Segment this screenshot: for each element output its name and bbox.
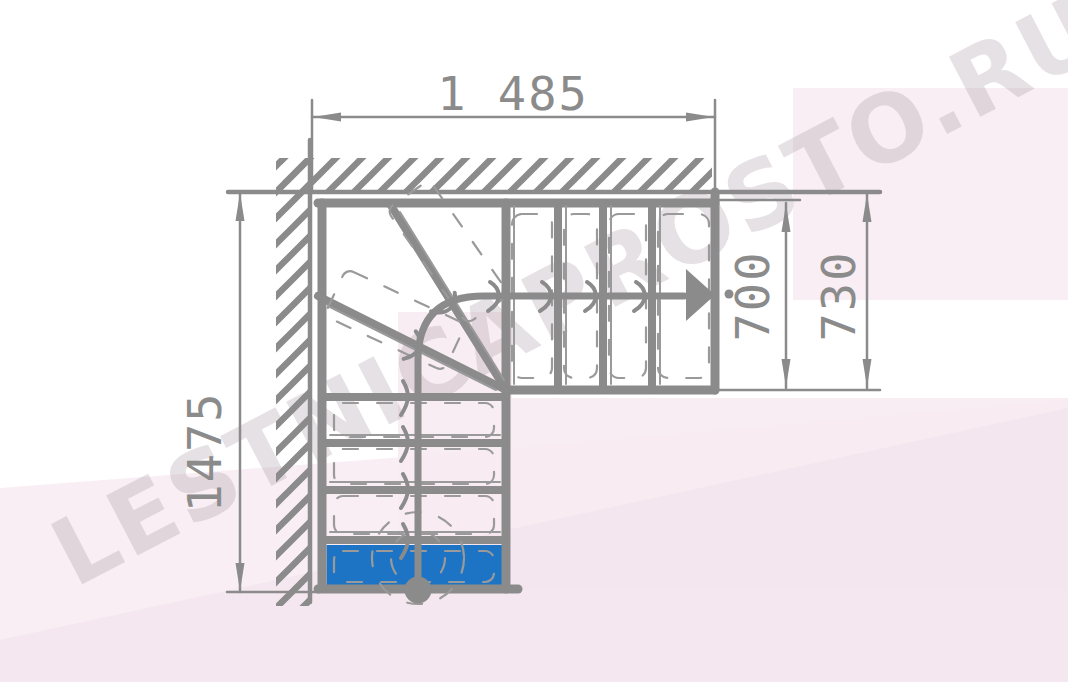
top-wall-hatch	[282, 158, 712, 194]
lower-flight-risers	[322, 397, 506, 540]
dimension-label-inner-width: 700	[725, 251, 780, 342]
left-wall-hatch	[276, 158, 312, 606]
left-wall	[276, 140, 312, 606]
dimension-label-left-depth: 1475	[177, 391, 232, 512]
dimension-label-outer-width: 730	[811, 251, 866, 342]
dimension-label-top-width: 1 485	[437, 66, 588, 121]
stair-plan-drawing: LESTNICAPROSTO.RU	[0, 0, 1068, 682]
walk-start-marker	[405, 577, 432, 604]
top-wall	[228, 158, 880, 194]
walk-line-step-hooks	[401, 282, 645, 558]
